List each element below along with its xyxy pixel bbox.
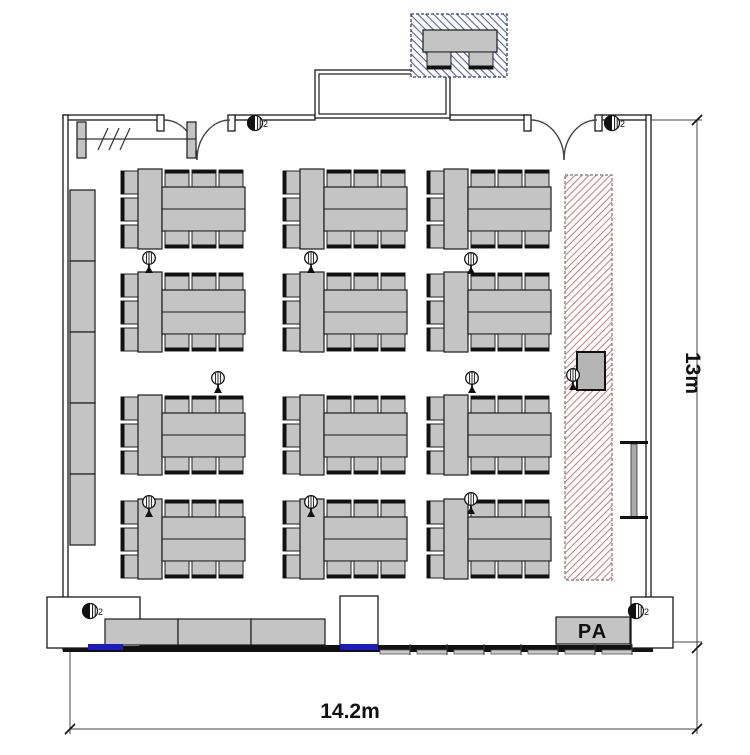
wall-outlet: [454, 650, 484, 654]
whiteboard-body: [631, 444, 637, 517]
table-group: [283, 169, 407, 249]
coat-rack-hatch-marks: [98, 128, 130, 150]
wall-right: [646, 115, 651, 650]
width-dimension-label: 14.2m: [320, 700, 380, 723]
side-counter-segment: [70, 261, 95, 332]
table-base-mark: [157, 646, 187, 650]
side-counter-segment: [70, 474, 95, 545]
reception-chair: [469, 52, 493, 69]
coat-rack-post: [77, 122, 86, 158]
table-base-mark: [202, 646, 232, 650]
floor-plan-page: 2: [0, 0, 750, 750]
wall-top-left: [63, 115, 160, 120]
back-table: [178, 619, 251, 645]
wall-outlet: [491, 650, 521, 654]
height-dimension-label: 13m: [681, 352, 704, 394]
door-leaf-arc: [197, 120, 230, 160]
doors: [157, 115, 602, 160]
wall-outlet: [528, 650, 558, 654]
podium: [577, 352, 605, 390]
floor-plan: 2: [0, 0, 750, 750]
mic-stand-icon: [465, 253, 478, 274]
table-group: [283, 499, 407, 579]
mic-stand-icon: [212, 372, 225, 393]
reception-chair: [427, 52, 451, 69]
wall-top-mid-left: [235, 115, 315, 120]
bottom-center-box: [340, 596, 378, 645]
door-leaf-arc: [564, 120, 597, 160]
side-counter-segment: [70, 190, 95, 261]
door-leaf-arc: [531, 120, 564, 160]
table-group: [427, 499, 551, 579]
side-counter-segment: [70, 403, 95, 474]
reception-table: [423, 30, 497, 52]
table-group: [283, 272, 407, 352]
back-table: [105, 619, 178, 645]
wall-outlet: [417, 650, 447, 654]
wall-left: [63, 115, 68, 650]
back-table: [251, 619, 325, 645]
side-counter-segment: [70, 332, 95, 403]
mic-stand-icon: [143, 252, 156, 273]
pa-label: PA: [578, 621, 608, 643]
coat-rack-post: [187, 122, 196, 158]
whiteboard: [620, 441, 648, 519]
bottom-tables-layer: [105, 619, 325, 645]
table-group: [121, 395, 245, 475]
table-group: [427, 395, 551, 475]
counter-layer: [70, 190, 95, 545]
table-groups-layer: [121, 169, 551, 579]
reception-area: [411, 14, 507, 77]
door-jamb: [228, 115, 235, 131]
wall-outlet: [565, 650, 595, 654]
door-jamb: [157, 115, 164, 131]
table-base-mark: [247, 646, 277, 650]
coat-rack: [77, 122, 196, 158]
table-group: [283, 395, 407, 475]
table-group: [427, 169, 551, 249]
table-group: [121, 272, 245, 352]
whiteboard-cap-top: [620, 441, 648, 444]
pa-station: PA: [556, 617, 630, 644]
door-jamb: [524, 115, 531, 131]
floor-marker: [340, 644, 378, 650]
wall-top-mid-right: [450, 115, 528, 120]
door-jamb: [595, 115, 602, 131]
table-group: [427, 272, 551, 352]
mic-stand-icon: [305, 252, 318, 273]
mic-stand-icon: [466, 372, 479, 393]
wall-outlet: [380, 650, 410, 654]
table-group: [121, 499, 245, 579]
table-base-mark: [292, 646, 322, 650]
wall-outlet: [602, 650, 632, 654]
floor-marker: [88, 644, 123, 650]
whiteboard-cap-bottom: [620, 516, 648, 519]
table-group: [121, 169, 245, 249]
